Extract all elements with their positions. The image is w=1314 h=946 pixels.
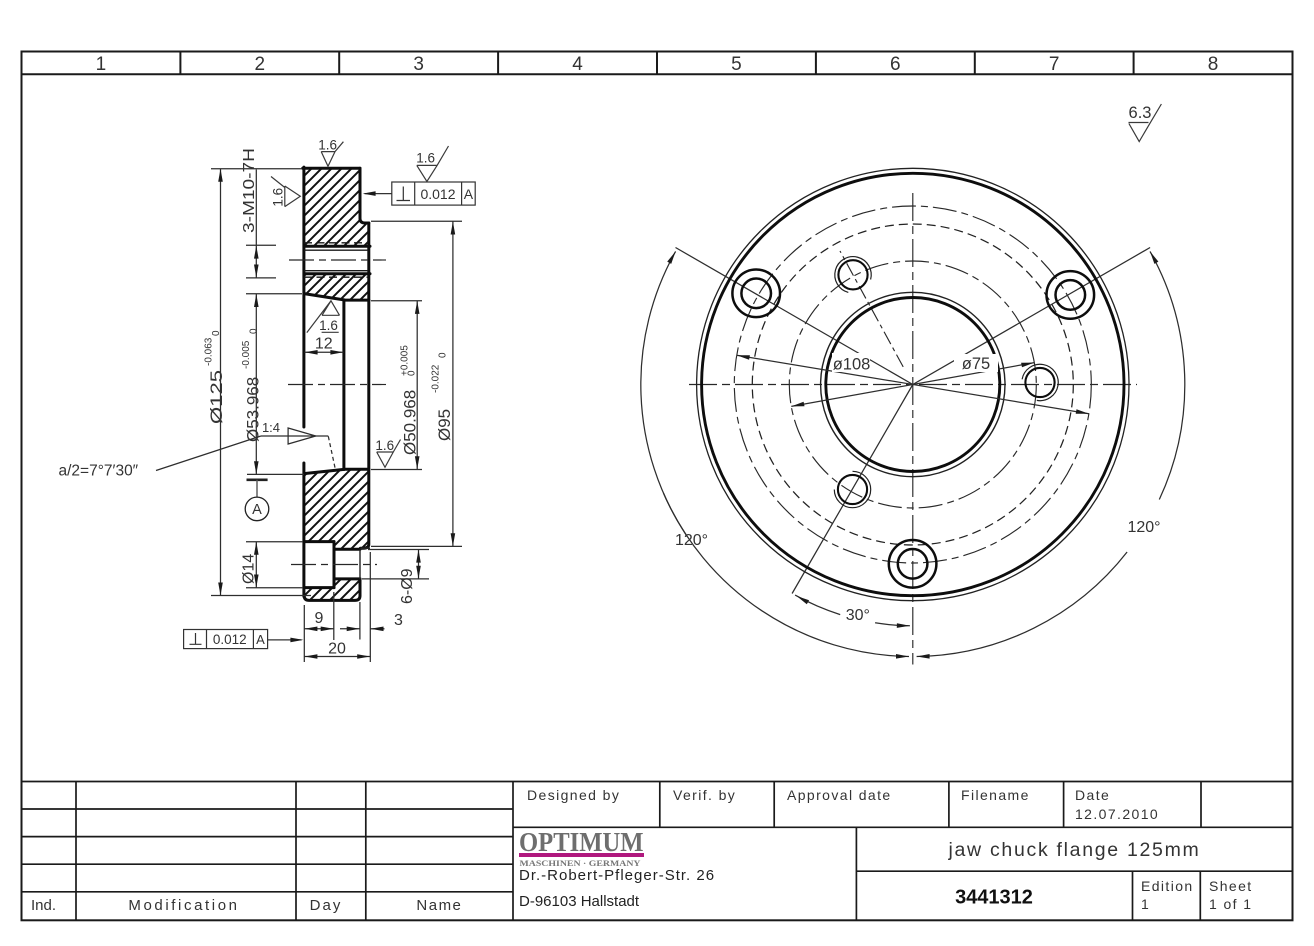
svg-text:Edition: Edition	[1141, 878, 1194, 894]
svg-text:Filename: Filename	[961, 787, 1030, 803]
svg-text:6-Ø9: 6-Ø9	[399, 568, 416, 604]
svg-text:OPTIMUM: OPTIMUM	[519, 827, 644, 857]
svg-text:6: 6	[890, 54, 901, 75]
svg-text:ø108: ø108	[833, 356, 871, 374]
svg-text:A: A	[256, 632, 265, 647]
svg-text:1:4: 1:4	[262, 420, 280, 435]
svg-text:A: A	[464, 186, 474, 202]
svg-text:-0.005: -0.005	[241, 340, 252, 369]
svg-text:120°: 120°	[675, 532, 708, 549]
svg-text:Ind.: Ind.	[31, 897, 56, 914]
svg-text:6.3: 6.3	[1129, 104, 1152, 122]
svg-text:3: 3	[394, 612, 403, 629]
svg-text:12.07.2010: 12.07.2010	[1075, 806, 1159, 822]
svg-text:Modification: Modification	[128, 897, 239, 914]
svg-text:120°: 120°	[1127, 519, 1160, 536]
svg-text:8: 8	[1208, 54, 1219, 75]
svg-text:0: 0	[211, 330, 222, 336]
svg-text:jaw chuck flange 125mm: jaw chuck flange 125mm	[947, 839, 1200, 861]
svg-text:12: 12	[315, 336, 333, 353]
svg-text:Date: Date	[1075, 787, 1110, 803]
svg-text:Day: Day	[310, 897, 343, 914]
svg-text:Dr.-Robert-Pfleger-Str. 26: Dr.-Robert-Pfleger-Str. 26	[519, 867, 715, 884]
svg-text:9: 9	[315, 610, 324, 627]
svg-text:20: 20	[328, 641, 346, 658]
svg-text:-0.063: -0.063	[204, 337, 215, 366]
svg-text:a/2=7°7′30″: a/2=7°7′30″	[59, 463, 139, 480]
svg-text:D-96103 Hallstadt: D-96103 Hallstadt	[519, 893, 640, 910]
svg-text:1.6: 1.6	[271, 188, 286, 207]
svg-text:4: 4	[572, 54, 583, 75]
svg-text:1: 1	[96, 54, 107, 75]
svg-text:ø75: ø75	[962, 355, 990, 373]
svg-text:1.6: 1.6	[318, 138, 337, 153]
svg-text:1.6: 1.6	[375, 438, 394, 453]
svg-text:1: 1	[1141, 896, 1150, 912]
svg-text:0.012: 0.012	[213, 632, 247, 647]
svg-text:30°: 30°	[846, 607, 870, 624]
svg-text:Ø125: Ø125	[207, 370, 226, 424]
svg-text:7: 7	[1049, 54, 1060, 75]
svg-text:Ø14: Ø14	[241, 554, 258, 584]
svg-text:Ø95: Ø95	[435, 409, 454, 441]
svg-text:Name: Name	[416, 897, 462, 914]
svg-text:2: 2	[255, 54, 266, 75]
svg-text:Verif. by: Verif. by	[673, 787, 736, 803]
svg-text:0: 0	[407, 370, 418, 376]
svg-text:Approval date: Approval date	[787, 787, 892, 803]
svg-text:-0.022: -0.022	[431, 364, 442, 393]
svg-text:0.012: 0.012	[420, 186, 455, 202]
svg-text:0: 0	[249, 328, 260, 334]
svg-text:3-M10-7H: 3-M10-7H	[241, 148, 258, 233]
svg-text:Designed by: Designed by	[527, 787, 620, 803]
svg-text:3: 3	[413, 54, 424, 75]
svg-text:1 of 1: 1 of 1	[1209, 896, 1252, 912]
svg-text:Sheet: Sheet	[1209, 878, 1253, 894]
svg-text:1.6: 1.6	[319, 318, 338, 333]
svg-text:A: A	[252, 502, 262, 518]
svg-text:5: 5	[731, 54, 742, 75]
svg-text:3441312: 3441312	[955, 887, 1033, 909]
svg-text:0: 0	[438, 352, 449, 358]
svg-text:Ø53.968: Ø53.968	[244, 377, 263, 442]
svg-text:Ø50.968: Ø50.968	[401, 390, 420, 455]
svg-text:1.6: 1.6	[416, 151, 435, 166]
